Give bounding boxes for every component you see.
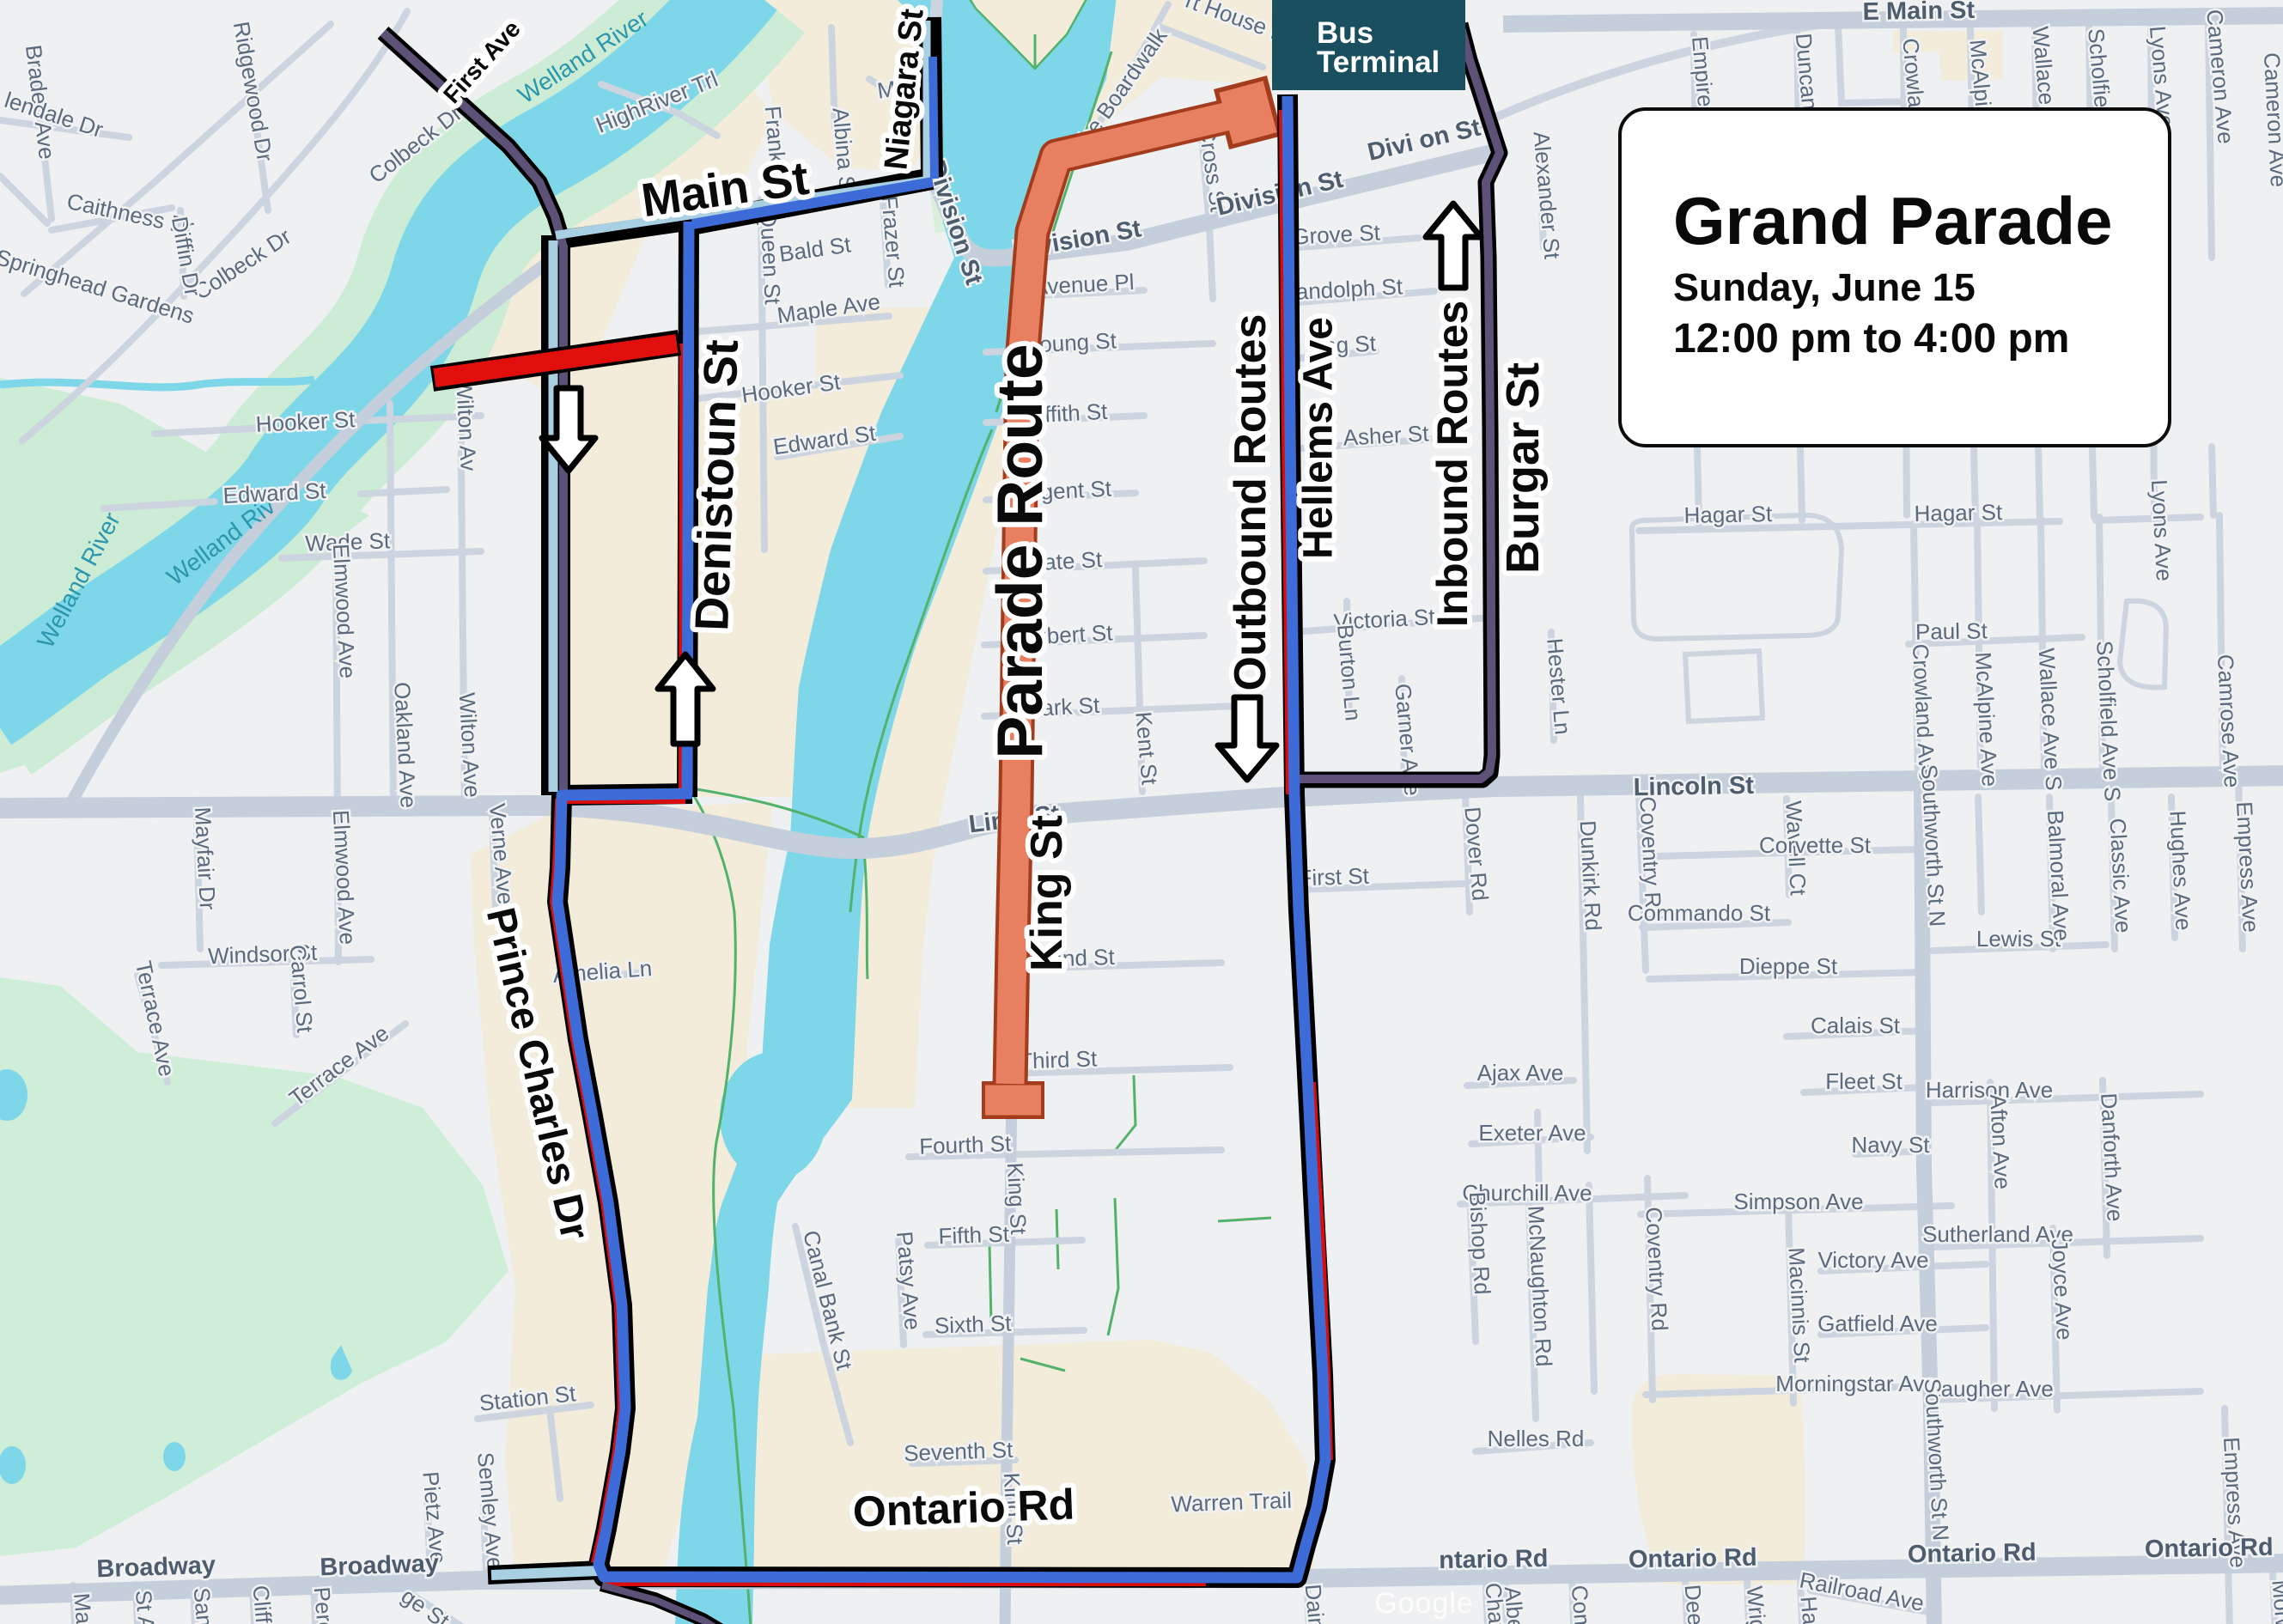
svg-text:Fifth St: Fifth St (938, 1221, 1010, 1250)
svg-text:Grove St: Grove St (1292, 219, 1382, 249)
svg-text:Third St: Third St (1019, 1045, 1099, 1074)
svg-text:Dieppe St: Dieppe St (1739, 953, 1838, 979)
svg-text:Asher St: Asher St (1342, 420, 1430, 450)
svg-text:Mar: Mar (69, 1592, 98, 1624)
svg-text:King St: King St (1022, 815, 1072, 971)
svg-text:Victory Ave: Victory Ave (1817, 1247, 1928, 1273)
svg-text:Sunday, June 15: Sunday, June 15 (1673, 265, 1976, 309)
svg-text:Avenue Pl: Avenue Pl (1032, 269, 1135, 300)
svg-text:Ontario Rd: Ontario Rd (1629, 1544, 1757, 1574)
svg-text:Wilton Av: Wilton Av (451, 378, 482, 471)
svg-text:Inbound Routes: Inbound Routes (1428, 301, 1476, 628)
svg-text:Hooker St: Hooker St (255, 406, 356, 437)
svg-text:Edward St: Edward St (222, 477, 327, 508)
svg-text:Broadway: Broadway (320, 1550, 440, 1582)
svg-text:Calais St: Calais St (1811, 1013, 1901, 1038)
svg-text:Exeter Ave: Exeter Ave (1478, 1120, 1586, 1146)
svg-text:Navy St: Navy St (1851, 1132, 1930, 1158)
svg-text:12:00 pm to 4:00 pm: 12:00 pm to 4:00 pm (1673, 316, 2069, 362)
svg-text:Afton Ave: Afton Ave (1985, 1093, 2016, 1189)
svg-text:Gatfield Ave: Gatfield Ave (1817, 1311, 1938, 1336)
svg-text:Simpson Ave: Simpson Ave (1733, 1189, 1863, 1214)
svg-text:Cliffo: Cliffo (247, 1584, 277, 1624)
svg-text:Fleet St: Fleet St (1825, 1068, 1902, 1094)
svg-text:Ontario Rd: Ontario Rd (852, 1481, 1075, 1536)
svg-text:Lyons Ave: Lyons Ave (2146, 479, 2177, 582)
svg-text:Wrig: Wrig (1742, 1585, 1772, 1624)
svg-text:Outbound Routes: Outbound Routes (1226, 313, 1275, 690)
svg-text:Commando St: Commando St (1628, 900, 1771, 926)
svg-text:St A: St A (131, 1589, 160, 1624)
svg-text:Google: Google (1374, 1587, 1474, 1620)
svg-text:Morningstar Ave: Morningstar Ave (1775, 1371, 1936, 1396)
svg-text:Broadway: Broadway (96, 1552, 216, 1584)
svg-text:ntario Rd: ntario Rd (1439, 1545, 1549, 1574)
svg-text:Deer: Deer (1680, 1584, 1710, 1624)
svg-text:Mayfair Dr: Mayfair Dr (190, 806, 221, 911)
svg-text:Hagar St: Hagar St (1683, 501, 1773, 528)
svg-text:Pere: Pere (309, 1586, 339, 1624)
svg-text:Seventh St: Seventh St (904, 1437, 1014, 1466)
svg-text:Corvette St: Corvette St (1759, 832, 1872, 858)
svg-text:Wilton Ave: Wilton Ave (454, 692, 485, 799)
svg-text:Terminal: Terminal (1317, 46, 1440, 79)
svg-text:Ha: Ha (1796, 1595, 1824, 1624)
svg-text:Nelles Rd: Nelles Rd (1488, 1426, 1585, 1451)
svg-text:Ontario Rd: Ontario Rd (2145, 1534, 2274, 1564)
svg-text:Paul St: Paul St (1915, 617, 1988, 644)
svg-text:Dain: Dain (1300, 1583, 1330, 1624)
svg-text:First St: First St (1298, 863, 1370, 891)
svg-text:Hagar St: Hagar St (1914, 499, 2003, 526)
svg-text:Parade Route: Parade Route (983, 344, 1056, 758)
svg-text:Sixth St: Sixth St (934, 1310, 1012, 1338)
svg-text:Burgar St: Burgar St (1497, 362, 1549, 574)
svg-text:Bishop Rd: Bishop Rd (1464, 1191, 1495, 1295)
svg-text:Albe: Albe (1500, 1585, 1529, 1624)
svg-text:Com: Com (1567, 1584, 1597, 1624)
svg-text:Sant: Sant (189, 1586, 219, 1624)
svg-text:Ontario Rd: Ontario Rd (1908, 1539, 2036, 1569)
svg-text:Fourth St: Fourth St (919, 1130, 1013, 1159)
svg-text:Ajax Ave: Ajax Ave (1477, 1060, 1564, 1086)
svg-text:King St: King St (1002, 1162, 1032, 1236)
svg-text:Joyce Ave: Joyce Ave (2047, 1238, 2078, 1341)
svg-text:Warren Trail: Warren Trail (1171, 1487, 1293, 1518)
svg-text:E Main St: E Main St (1862, 0, 1975, 26)
svg-text:Lewis St: Lewis St (1976, 926, 2061, 952)
svg-text:Grand Parade: Grand Parade (1673, 183, 2113, 259)
svg-text:Denistoun St: Denistoun St (685, 338, 748, 631)
svg-text:Hellems Ave: Hellems Ave (1296, 317, 1342, 559)
